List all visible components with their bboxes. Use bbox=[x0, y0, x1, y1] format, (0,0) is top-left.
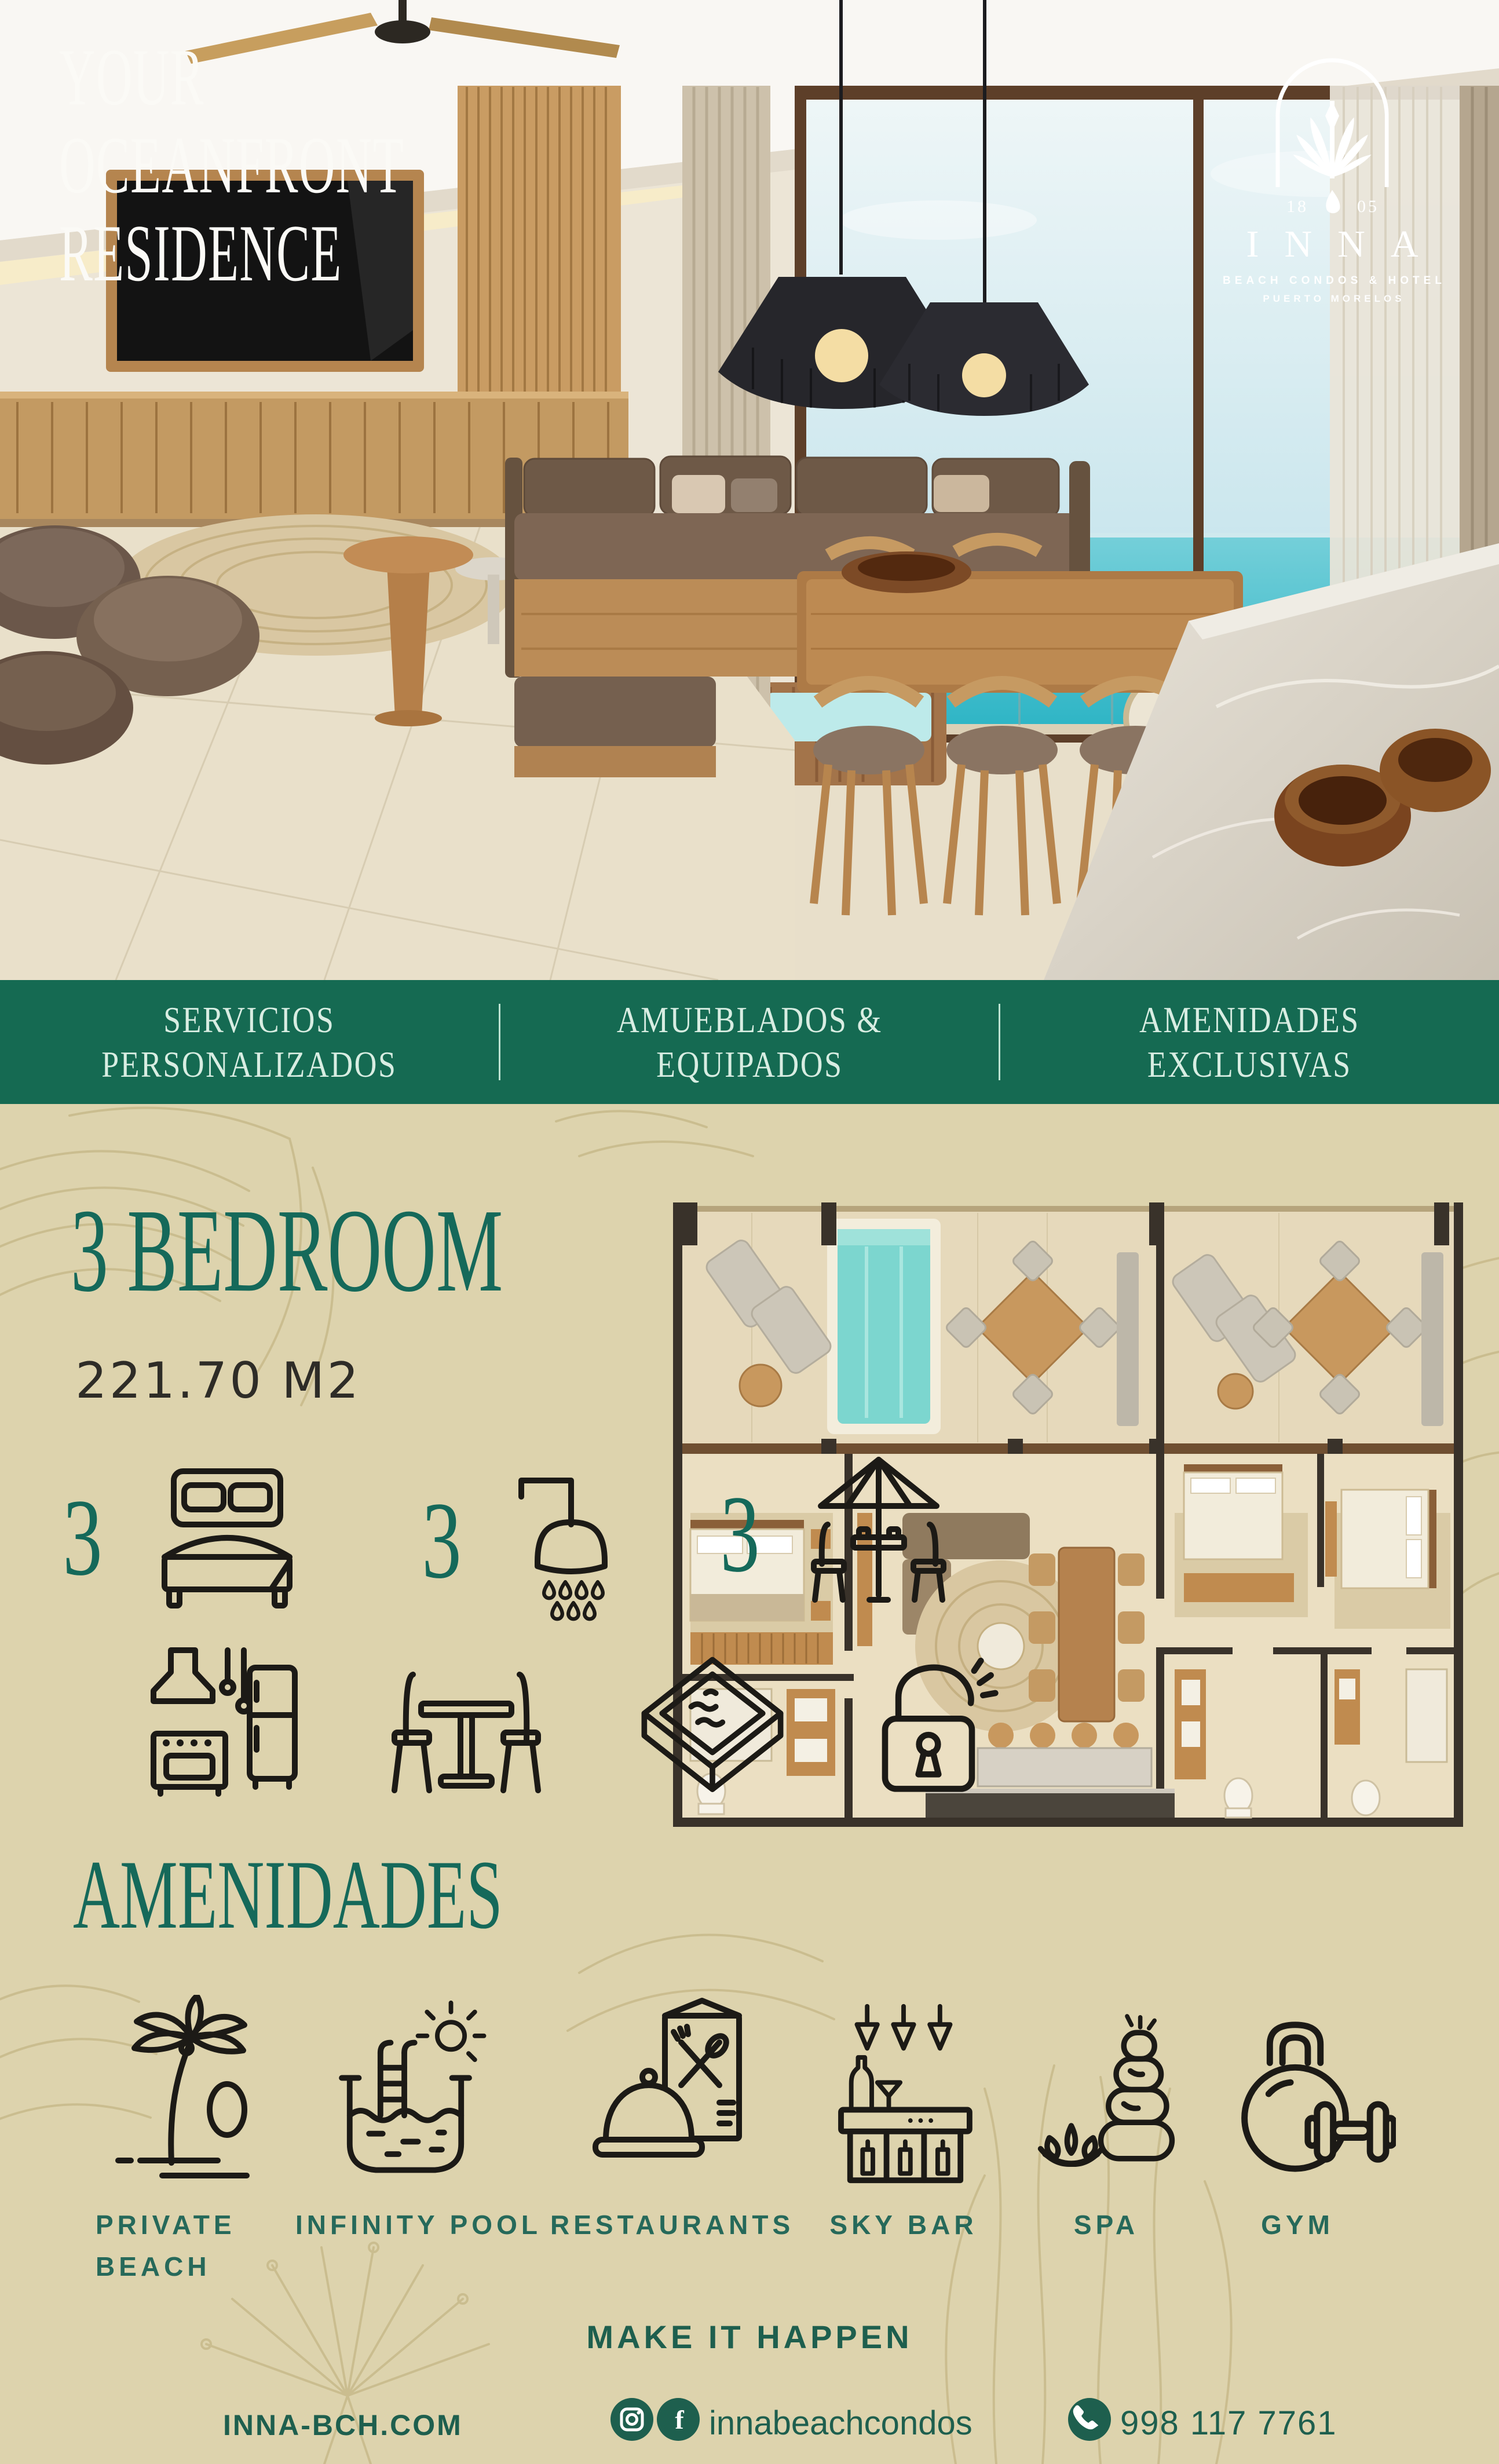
banner-item-amenidades: AMENIDADES EXCLUSIVAS bbox=[1000, 997, 1499, 1087]
logo-tagline: BEACH CONDOS & HOTEL bbox=[1205, 275, 1464, 287]
social-handle[interactable]: innabeachcondos bbox=[709, 2404, 972, 2443]
unit-title: 3 BEDROOM bbox=[71, 1182, 503, 1319]
amenities-title: AMENIDADES bbox=[73, 1838, 503, 1951]
phone-number[interactable]: 998 117 7761 bbox=[1120, 2404, 1337, 2443]
kitchen-icon bbox=[130, 1642, 304, 1798]
private-beach-icon bbox=[81, 1995, 266, 2186]
footer: INNA-BCH.COM f innabeachcondos 998 117 7… bbox=[0, 2385, 1499, 2464]
facebook-icon[interactable]: f bbox=[656, 2397, 701, 2442]
flyer-poster: YOUR OCEANFRONT RESIDENCE 18 bbox=[0, 0, 1499, 2464]
logo-year-left: 18 bbox=[1286, 197, 1308, 216]
lock-open-icon bbox=[856, 1644, 1001, 1800]
terraces-count: 3 bbox=[712, 1450, 960, 1618]
cta-text: MAKE IT HAPPEN bbox=[0, 2318, 1499, 2356]
hero-title-line: OCEANFRONT bbox=[59, 122, 404, 210]
feature-lock bbox=[856, 1644, 1001, 1803]
bathrooms-count: 3 bbox=[414, 1460, 632, 1622]
wood-slat-panel bbox=[458, 86, 621, 410]
terrace-dining-icon bbox=[798, 1450, 960, 1618]
details-section: 3 BEDROOM 221.70 M2 bbox=[0, 1104, 1499, 2464]
amenity-sky-bar: SKY BAR bbox=[794, 1998, 1014, 2246]
hero-title: YOUR OCEANFRONT RESIDENCE bbox=[59, 34, 404, 298]
bed-icon bbox=[140, 1465, 314, 1610]
gym-icon bbox=[1199, 2008, 1396, 2186]
svg-text:f: f bbox=[675, 2405, 684, 2434]
bedroom-three bbox=[1325, 1490, 1450, 1629]
logo-year-right: 05 bbox=[1357, 197, 1379, 216]
dining-table-icon bbox=[379, 1654, 553, 1804]
instagram-icon[interactable] bbox=[609, 2397, 655, 2442]
spa-icon bbox=[1014, 2005, 1199, 2186]
feature-plunge-pool bbox=[623, 1651, 802, 1810]
plunge-pool-icon bbox=[623, 1651, 802, 1807]
amenity-gym: GYM bbox=[1187, 2008, 1407, 2246]
highlights-banner: SERVICIOS PERSONALIZADOS AMUEBLADOS & EQ… bbox=[0, 980, 1499, 1104]
amenity-restaurants: RESTAURANTS bbox=[550, 1993, 770, 2246]
banner-item-servicios: SERVICIOS PERSONALIZADOS bbox=[0, 997, 499, 1087]
amenity-infinity-pool: INFINITY POOL bbox=[295, 1998, 515, 2246]
feature-kitchen bbox=[130, 1642, 304, 1801]
feature-dining bbox=[379, 1654, 553, 1807]
hero-title-line: YOUR bbox=[59, 34, 404, 122]
inna-logo: 18 05 INNA BEACH CONDOS & HOTEL PUERTO M… bbox=[1205, 45, 1460, 305]
hero-title-line: RESIDENCE bbox=[59, 210, 404, 298]
infinity-pool-icon bbox=[313, 1998, 498, 2186]
shower-icon bbox=[499, 1460, 632, 1622]
floor-plan-terrace bbox=[682, 1206, 1454, 1443]
restaurants-icon bbox=[568, 1993, 753, 2186]
amenity-private-beach: PRIVATE BEACH bbox=[64, 1995, 284, 2287]
bedrooms-count: 3 bbox=[55, 1465, 314, 1610]
unit-area: 221.70 M2 bbox=[75, 1352, 361, 1410]
logo-location: PUERTO MORELOS bbox=[1205, 293, 1463, 305]
inna-emblem-icon: 18 05 bbox=[1240, 45, 1425, 219]
phone-icon[interactable] bbox=[1067, 2397, 1112, 2442]
amenity-spa: SPA bbox=[996, 2005, 1216, 2246]
website-link[interactable]: INNA-BCH.COM bbox=[223, 2408, 463, 2442]
sky-bar-icon bbox=[811, 1998, 996, 2186]
logo-name: INNA bbox=[1205, 222, 1485, 266]
hero-section: YOUR OCEANFRONT RESIDENCE 18 bbox=[0, 0, 1499, 980]
banner-item-amueblados: AMUEBLADOS & EQUIPADOS bbox=[500, 997, 999, 1087]
